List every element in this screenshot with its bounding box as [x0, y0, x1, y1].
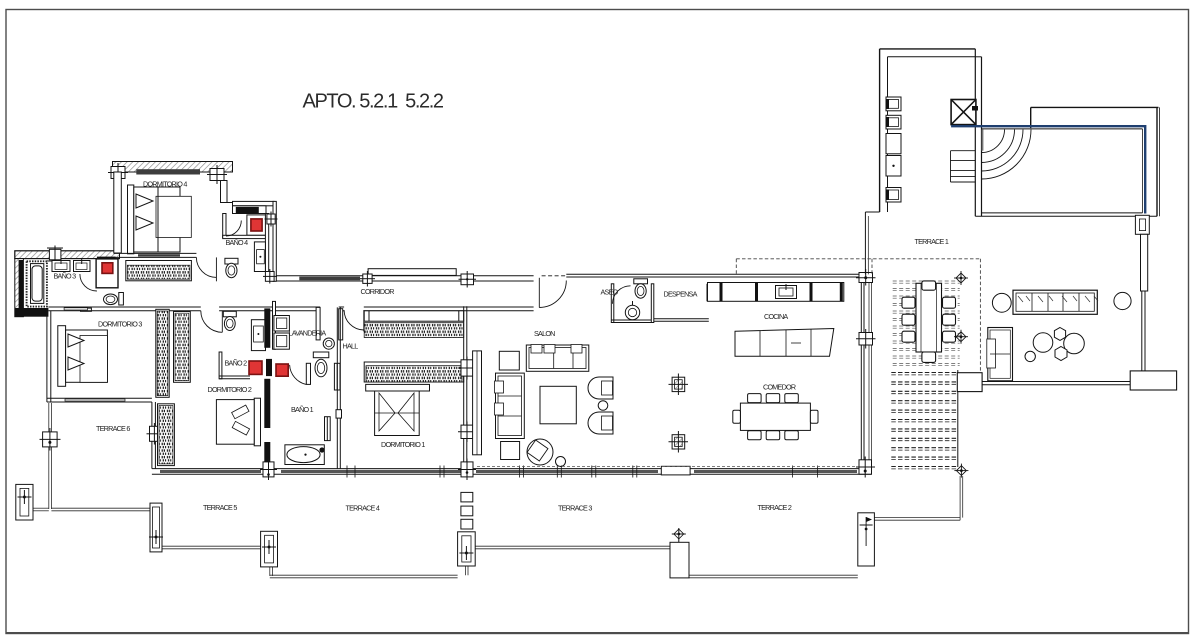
svg-text:DORMITORIO 1: DORMITORIO 1 [381, 440, 425, 449]
svg-text:DORMITORIO 2: DORMITORIO 2 [208, 385, 252, 394]
svg-text:TERRACE 2: TERRACE 2 [758, 503, 792, 512]
svg-text:ASEO: ASEO [601, 288, 619, 297]
svg-text:BAÑO 2: BAÑO 2 [225, 359, 248, 368]
svg-text:HALL: HALL [343, 342, 359, 351]
svg-text:TERRACE 5: TERRACE 5 [203, 503, 237, 512]
svg-text:CORRIDOR: CORRIDOR [361, 287, 395, 296]
svg-text:TERRACE 3: TERRACE 3 [558, 504, 592, 513]
svg-text:BAÑO 4: BAÑO 4 [226, 238, 249, 247]
svg-text:DORMITORIO 3: DORMITORIO 3 [98, 320, 142, 329]
svg-text:TERRACE 4: TERRACE 4 [346, 504, 380, 513]
svg-text:BAÑO 1: BAÑO 1 [291, 405, 314, 414]
svg-text:APTO. 5.2.1 5.2.2: APTO. 5.2.1 5.2.2 [303, 91, 444, 113]
svg-text:SALON: SALON [534, 329, 555, 338]
svg-text:COCINA: COCINA [764, 312, 788, 321]
svg-text:LAVANDERIA: LAVANDERIA [289, 328, 327, 337]
svg-text:DESPENSA: DESPENSA [664, 289, 698, 298]
svg-text:TERRACE 1: TERRACE 1 [915, 237, 949, 246]
svg-text:TERRACE 6: TERRACE 6 [96, 424, 130, 433]
svg-text:BAÑO 3: BAÑO 3 [54, 272, 77, 281]
svg-text:DORMITORIO 4: DORMITORIO 4 [143, 180, 187, 189]
svg-text:COMEDOR: COMEDOR [763, 383, 796, 392]
